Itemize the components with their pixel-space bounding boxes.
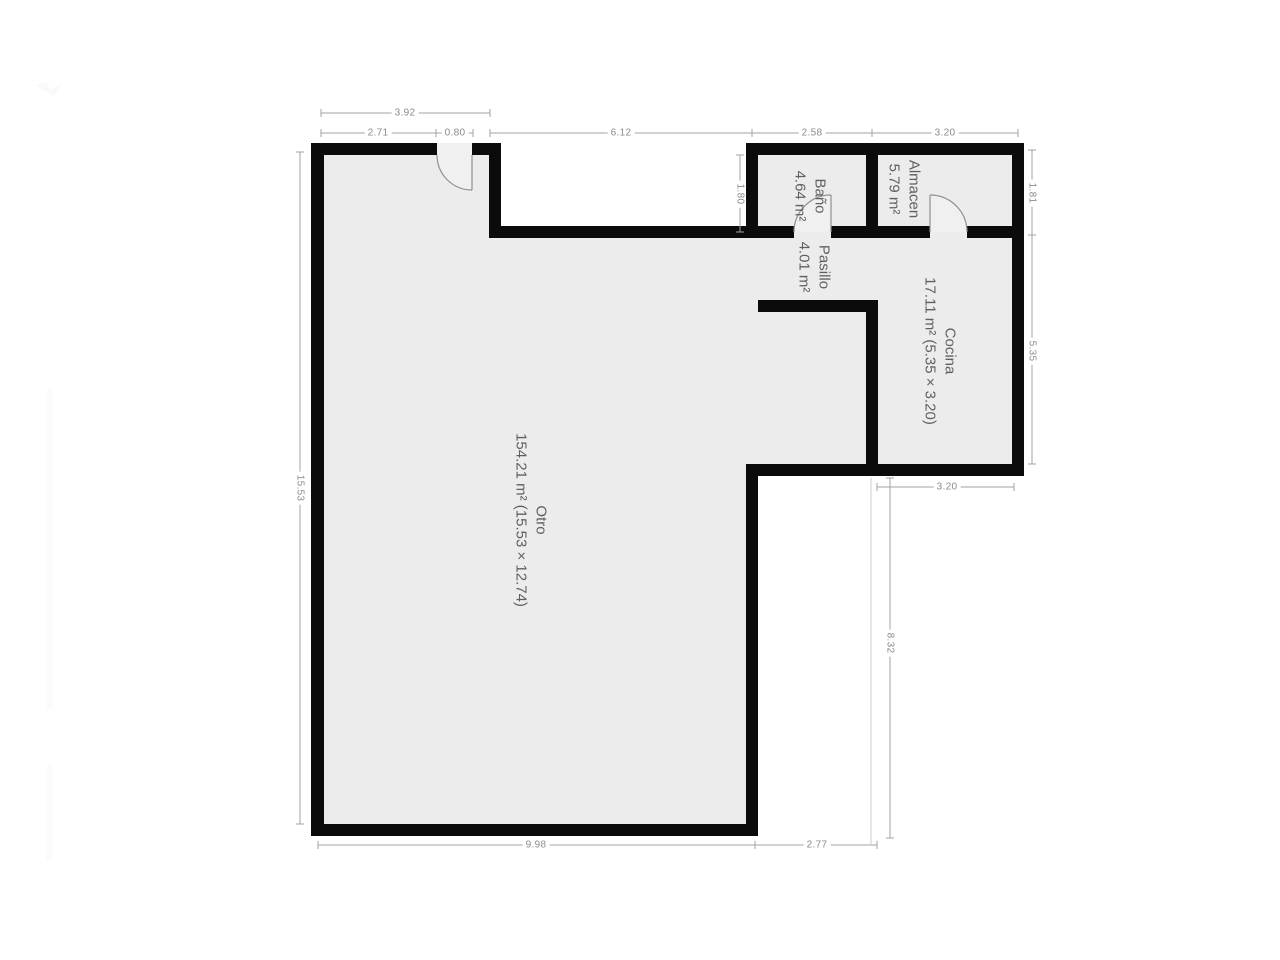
dim-label-cocina-height: 5.35 xyxy=(1027,338,1038,365)
wall-right xyxy=(1012,143,1024,476)
room-label-almacen: Almacen 5.79 m² xyxy=(885,160,924,218)
dim-label-bano-width: 2.58 xyxy=(799,128,826,139)
wall-cocina-left xyxy=(866,300,878,476)
floor-area xyxy=(311,143,1024,836)
room-name: Pasillo xyxy=(814,242,834,293)
dim-label-bottom-main: 9.98 xyxy=(523,840,550,851)
wall-lower-right xyxy=(746,464,758,836)
watermark-text xyxy=(46,765,53,860)
entry-door-gap xyxy=(437,143,472,155)
floorplan-drawing xyxy=(0,0,1280,960)
room-name: Almacen xyxy=(904,160,924,218)
room-label-otro: Otro 154.21 m² (15.53 × 12.74) xyxy=(512,433,551,607)
dim-label-cocina-width-bottom: 3.20 xyxy=(934,482,961,493)
room-area: 154.21 m² (15.53 × 12.74) xyxy=(512,433,532,607)
wall-top-left-a xyxy=(311,143,437,155)
room-name: Baño xyxy=(810,171,830,222)
wall-top-right xyxy=(746,143,1024,155)
dim-label-notch-height: 1.80 xyxy=(735,181,746,208)
dim-label-extension-height: 8.32 xyxy=(885,630,896,657)
dim-label-top-overall: 3.92 xyxy=(392,108,419,119)
dim-label-top-wall: 2.71 xyxy=(365,128,392,139)
room-area: 4.64 m² xyxy=(791,171,811,222)
room-label-cocina: Cocina 17.11 m² (5.35 × 3.20) xyxy=(921,277,960,425)
dim-label-bottom-extension: 2.77 xyxy=(804,840,831,851)
wall-bano-left xyxy=(746,143,758,238)
dim-label-left-height: 15.53 xyxy=(295,472,306,505)
wall-mid-a xyxy=(489,226,794,238)
wall-pasillo-bottom xyxy=(758,300,878,312)
room-name: Cocina xyxy=(940,277,960,425)
wall-left xyxy=(311,143,324,836)
dim-label-top-door: 0.80 xyxy=(442,128,469,139)
wall-step xyxy=(489,143,501,238)
wall-bano-almacen-divider xyxy=(866,143,878,238)
watermark-text xyxy=(46,390,53,710)
room-label-bano: Baño 4.64 m² xyxy=(791,171,830,222)
room-name: Otro xyxy=(531,433,551,607)
room-area: 5.79 m² xyxy=(885,160,905,218)
floorplan-canvas: Otro 154.21 m² (15.53 × 12.74) Cocina 17… xyxy=(0,0,1280,960)
dim-label-almacen-width: 3.20 xyxy=(932,128,959,139)
wall-mid-b xyxy=(831,226,930,238)
dim-label-bano-height: 1.81 xyxy=(1027,180,1038,207)
wall-band-bottom-cocina xyxy=(746,464,1024,476)
dim-label-notch-width: 6.12 xyxy=(608,128,635,139)
wall-mid-c xyxy=(967,226,1024,238)
room-area: 17.11 m² (5.35 × 3.20) xyxy=(921,277,941,425)
room-label-pasillo: Pasillo 4.01 m² xyxy=(795,242,834,293)
wall-bottom xyxy=(311,824,758,836)
room-area: 4.01 m² xyxy=(795,242,815,293)
